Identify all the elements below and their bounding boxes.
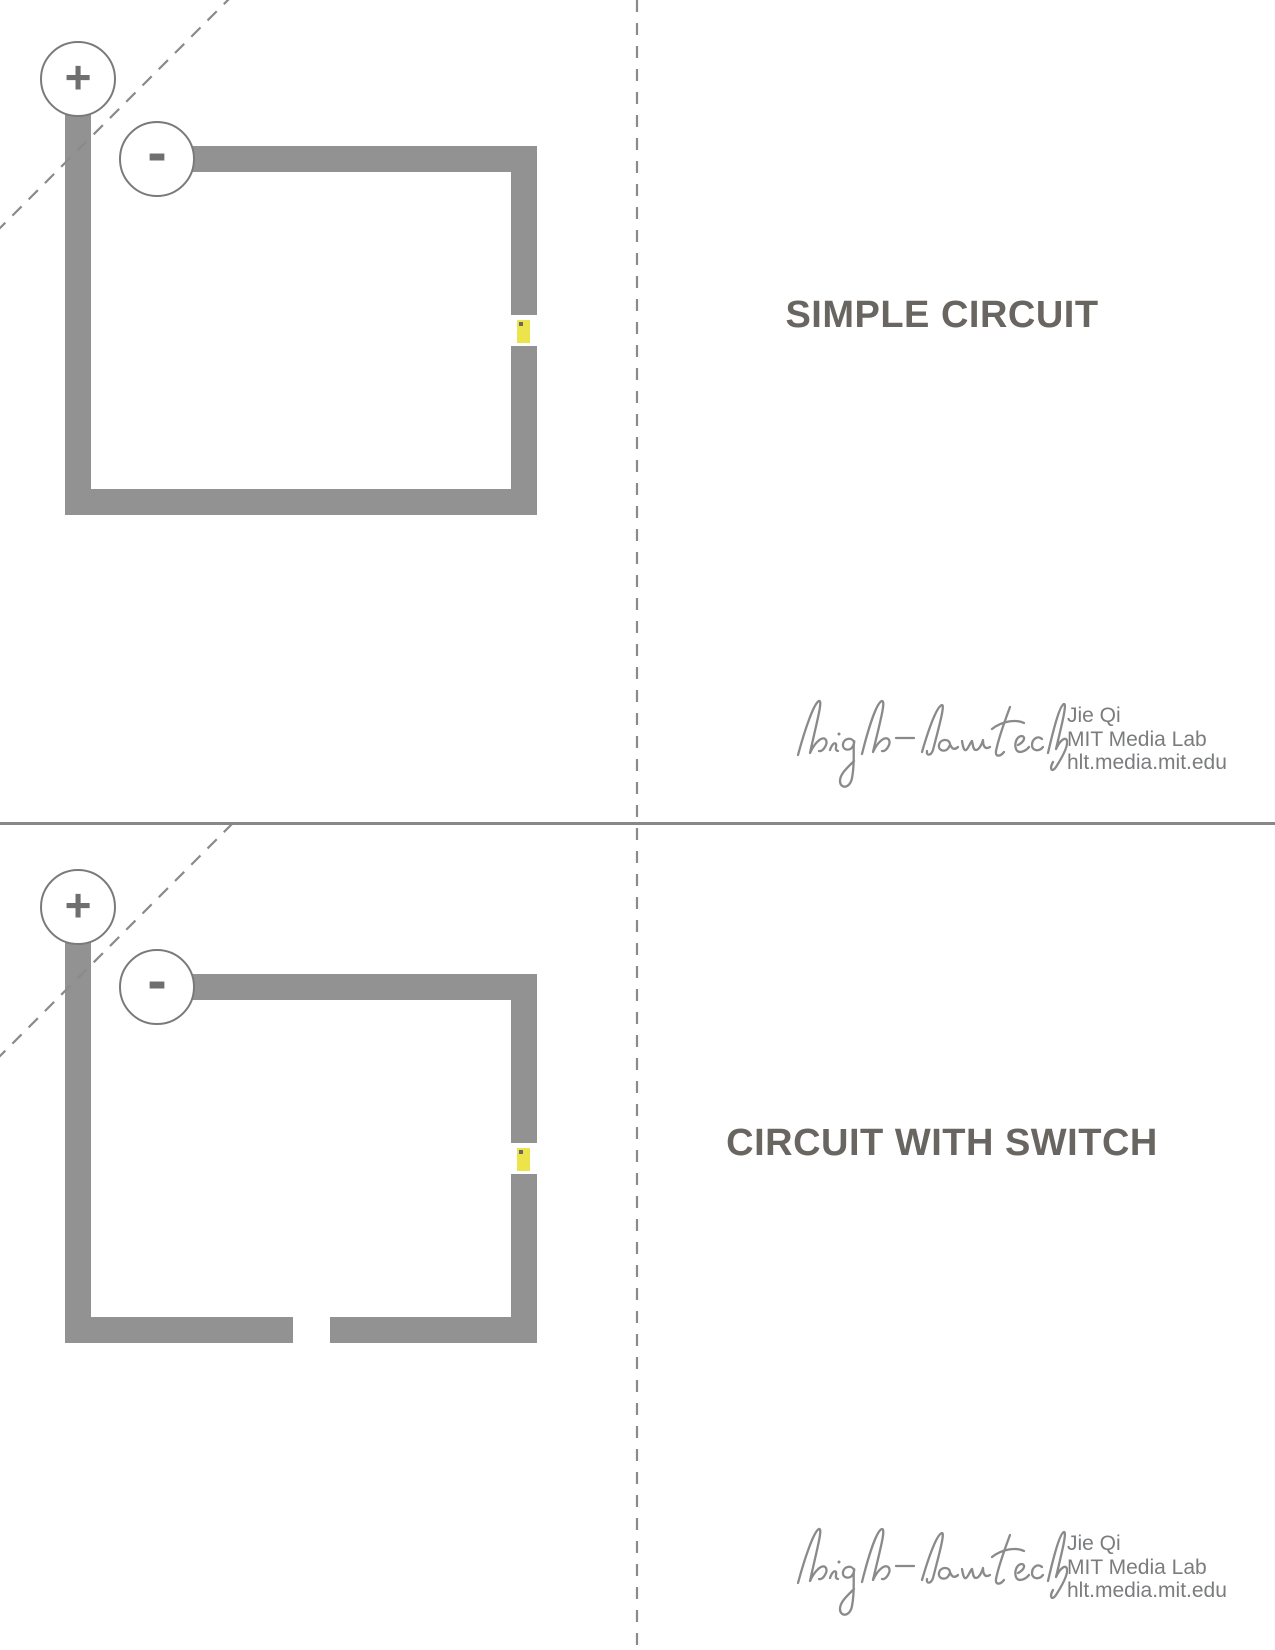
circuit-trace-top (157, 974, 537, 1000)
led-sticker (517, 1148, 530, 1171)
credit-block: Jie Qi MIT Media Lab hlt.media.mit.edu (1067, 704, 1227, 775)
credit-name: Jie Qi (1067, 704, 1227, 728)
credit-org: MIT Media Lab (1067, 728, 1227, 752)
circuit-trace-bottom-right-of-switch (330, 1317, 537, 1343)
credit-org: MIT Media Lab (1067, 1556, 1227, 1580)
credit-url: hlt.media.mit.edu (1067, 1579, 1227, 1603)
led-cathode-dot (519, 322, 523, 326)
circuit-template-page: + - SIMPLE CIRCUIT Jie Qi MIT Media Lab … (0, 0, 1275, 1650)
battery-negative-terminal: - (119, 949, 195, 1025)
credit-block: Jie Qi MIT Media Lab hlt.media.mit.edu (1067, 1532, 1227, 1603)
circuit-trace-bottom (65, 489, 537, 515)
battery-negative-terminal: - (119, 121, 195, 197)
circuit-trace-top (157, 146, 537, 172)
circuit-trace-left (65, 79, 91, 515)
plus-icon: + (65, 54, 92, 100)
credit-name: Jie Qi (1067, 1532, 1227, 1556)
minus-icon: - (147, 124, 166, 182)
led-cathode-dot (519, 1150, 523, 1154)
section-title: CIRCUIT WITH SWITCH (637, 1124, 1247, 1162)
plus-icon: + (65, 882, 92, 928)
circuit-trace-right-upper (511, 146, 537, 315)
battery-positive-terminal: + (40, 869, 116, 945)
high-low-tech-logo-icon (788, 693, 1068, 811)
circuit-with-switch-panel: + - CIRCUIT WITH SWITCH Jie Qi MIT Media… (0, 828, 1275, 1650)
section-title: SIMPLE CIRCUIT (637, 296, 1247, 334)
circuit-trace-right-upper (511, 974, 537, 1143)
circuit-trace-bottom-left-of-switch (65, 1317, 293, 1343)
section-divider-line (0, 822, 1275, 825)
circuit-trace-left (65, 907, 91, 1343)
high-low-tech-logo-icon (788, 1521, 1068, 1639)
led-sticker (517, 320, 530, 343)
credit-url: hlt.media.mit.edu (1067, 751, 1227, 775)
battery-positive-terminal: + (40, 41, 116, 117)
minus-icon: - (147, 952, 166, 1010)
simple-circuit-panel: + - SIMPLE CIRCUIT Jie Qi MIT Media Lab … (0, 0, 1275, 822)
